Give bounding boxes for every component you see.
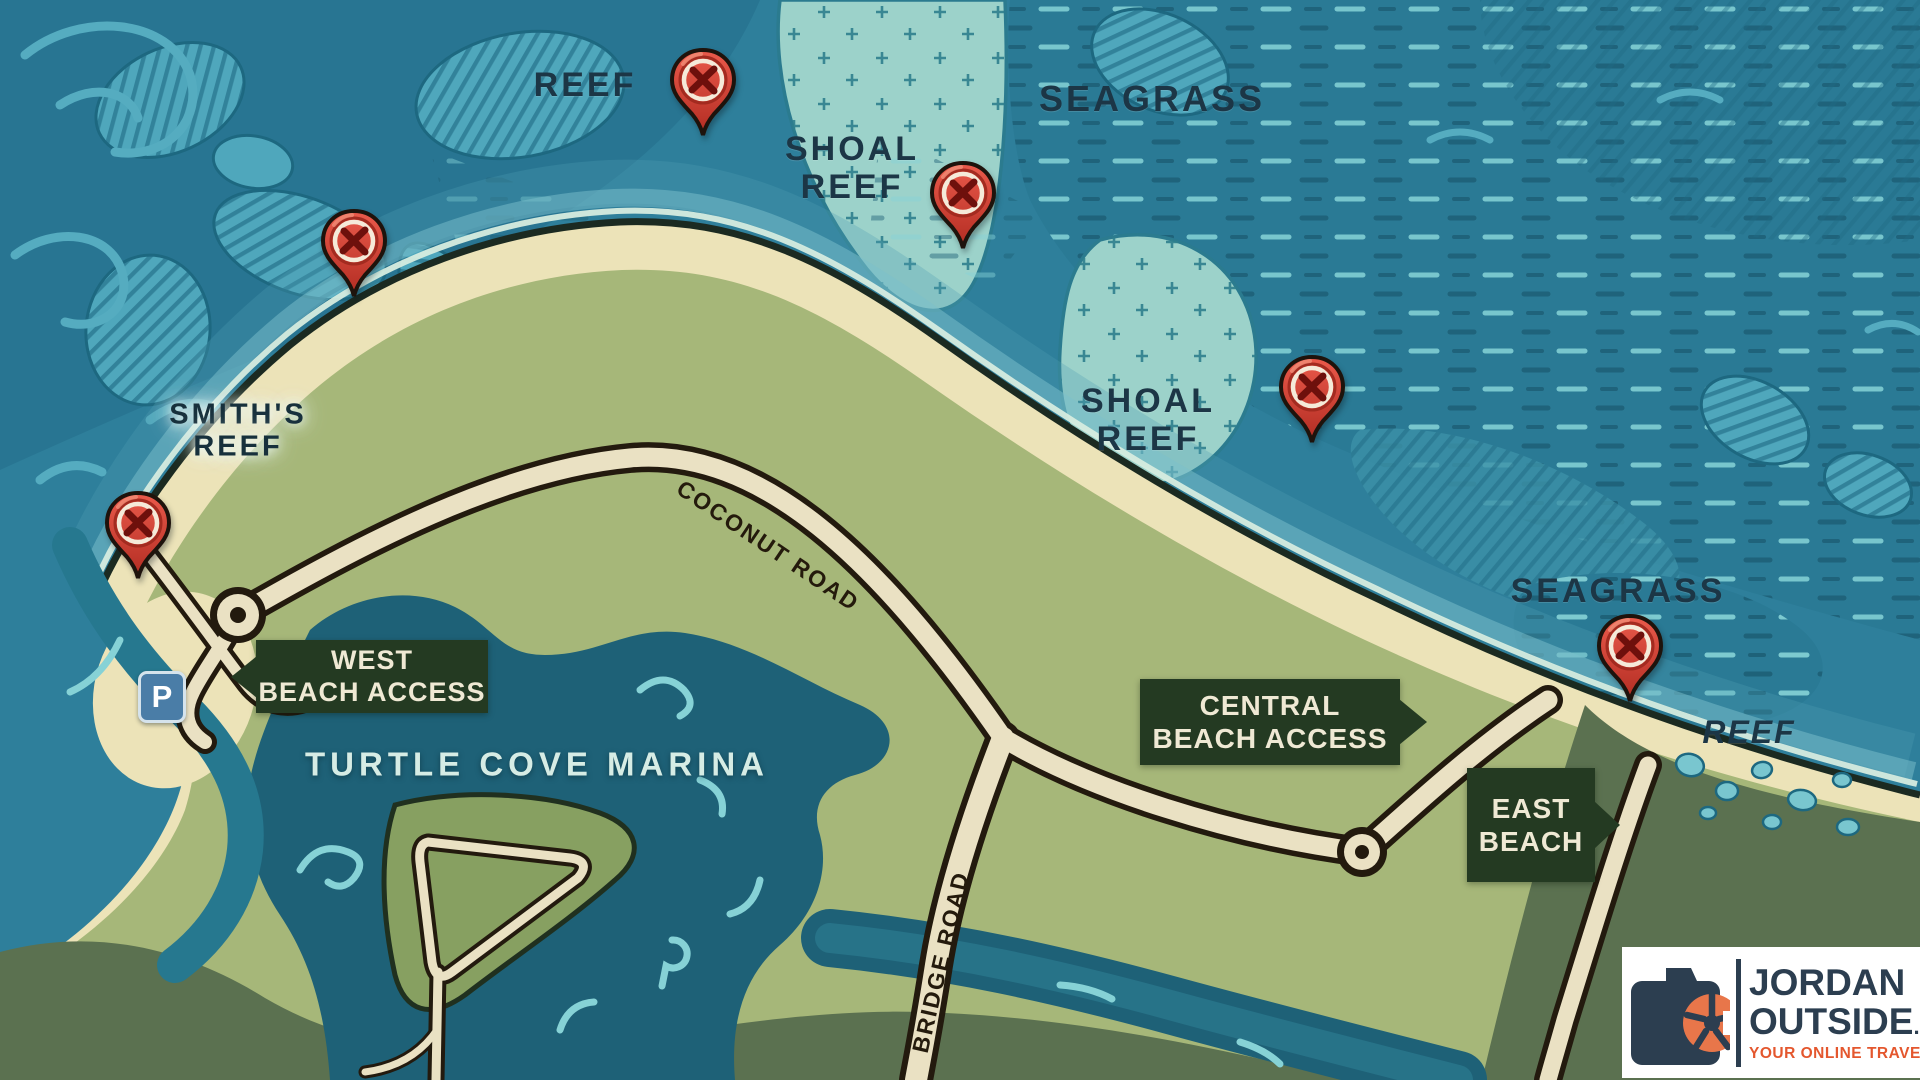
label-shoal-reef-central: SHOAL REEF bbox=[1081, 382, 1215, 458]
beach-snorkel-map: REEF SHOAL REEF SEAGRASS SHOAL REEF SMIT… bbox=[0, 0, 1920, 1080]
snorkel-spot-pin[interactable] bbox=[1277, 354, 1347, 446]
label-reef-southeast: REEF bbox=[1702, 715, 1795, 751]
snorkel-spot-pin[interactable] bbox=[103, 490, 173, 582]
map-pin-x-icon bbox=[928, 160, 998, 252]
east-beach-access-sign: EAST BEACH bbox=[1467, 768, 1595, 882]
camera-icon bbox=[1630, 955, 1730, 1071]
label-turtle-cove-marina: TURTLE COVE MARINA bbox=[305, 747, 769, 784]
label-smiths-reef: SMITH'S REEF bbox=[169, 399, 306, 464]
label-reef-northwest: REEF bbox=[534, 66, 637, 104]
logo-divider bbox=[1736, 959, 1741, 1067]
map-pin-x-icon bbox=[319, 208, 389, 300]
parking-icon: P bbox=[138, 671, 186, 723]
map-pin-x-icon bbox=[1595, 613, 1665, 705]
snorkel-spot-pin[interactable] bbox=[928, 160, 998, 252]
label-seagrass-north: SEAGRASS bbox=[1039, 79, 1265, 119]
brand-logo: JORDAN OUTSIDE.COM YOUR ONLINE TRAVEL GU… bbox=[1622, 947, 1920, 1078]
west-beach-access-sign: WEST BEACH ACCESS bbox=[256, 640, 488, 713]
logo-brand-bottom: OUTSIDE.COM bbox=[1749, 1003, 1920, 1040]
map-pin-x-icon bbox=[1277, 354, 1347, 446]
label-shoal-reef-north: SHOAL REEF bbox=[785, 130, 919, 206]
logo-tld: .COM bbox=[1913, 1014, 1920, 1039]
snorkel-spot-pin[interactable] bbox=[668, 47, 738, 139]
snorkel-spot-pin[interactable] bbox=[1595, 613, 1665, 705]
logo-brand-top: JORDAN bbox=[1749, 964, 1920, 1001]
map-pin-x-icon bbox=[668, 47, 738, 139]
logo-tagline: YOUR ONLINE TRAVEL GUIDE bbox=[1749, 1046, 1920, 1062]
label-seagrass-east: SEAGRASS bbox=[1511, 572, 1726, 610]
central-beach-access-sign: CENTRAL BEACH ACCESS bbox=[1140, 679, 1400, 765]
snorkel-spot-pin[interactable] bbox=[319, 208, 389, 300]
map-pin-x-icon bbox=[103, 490, 173, 582]
